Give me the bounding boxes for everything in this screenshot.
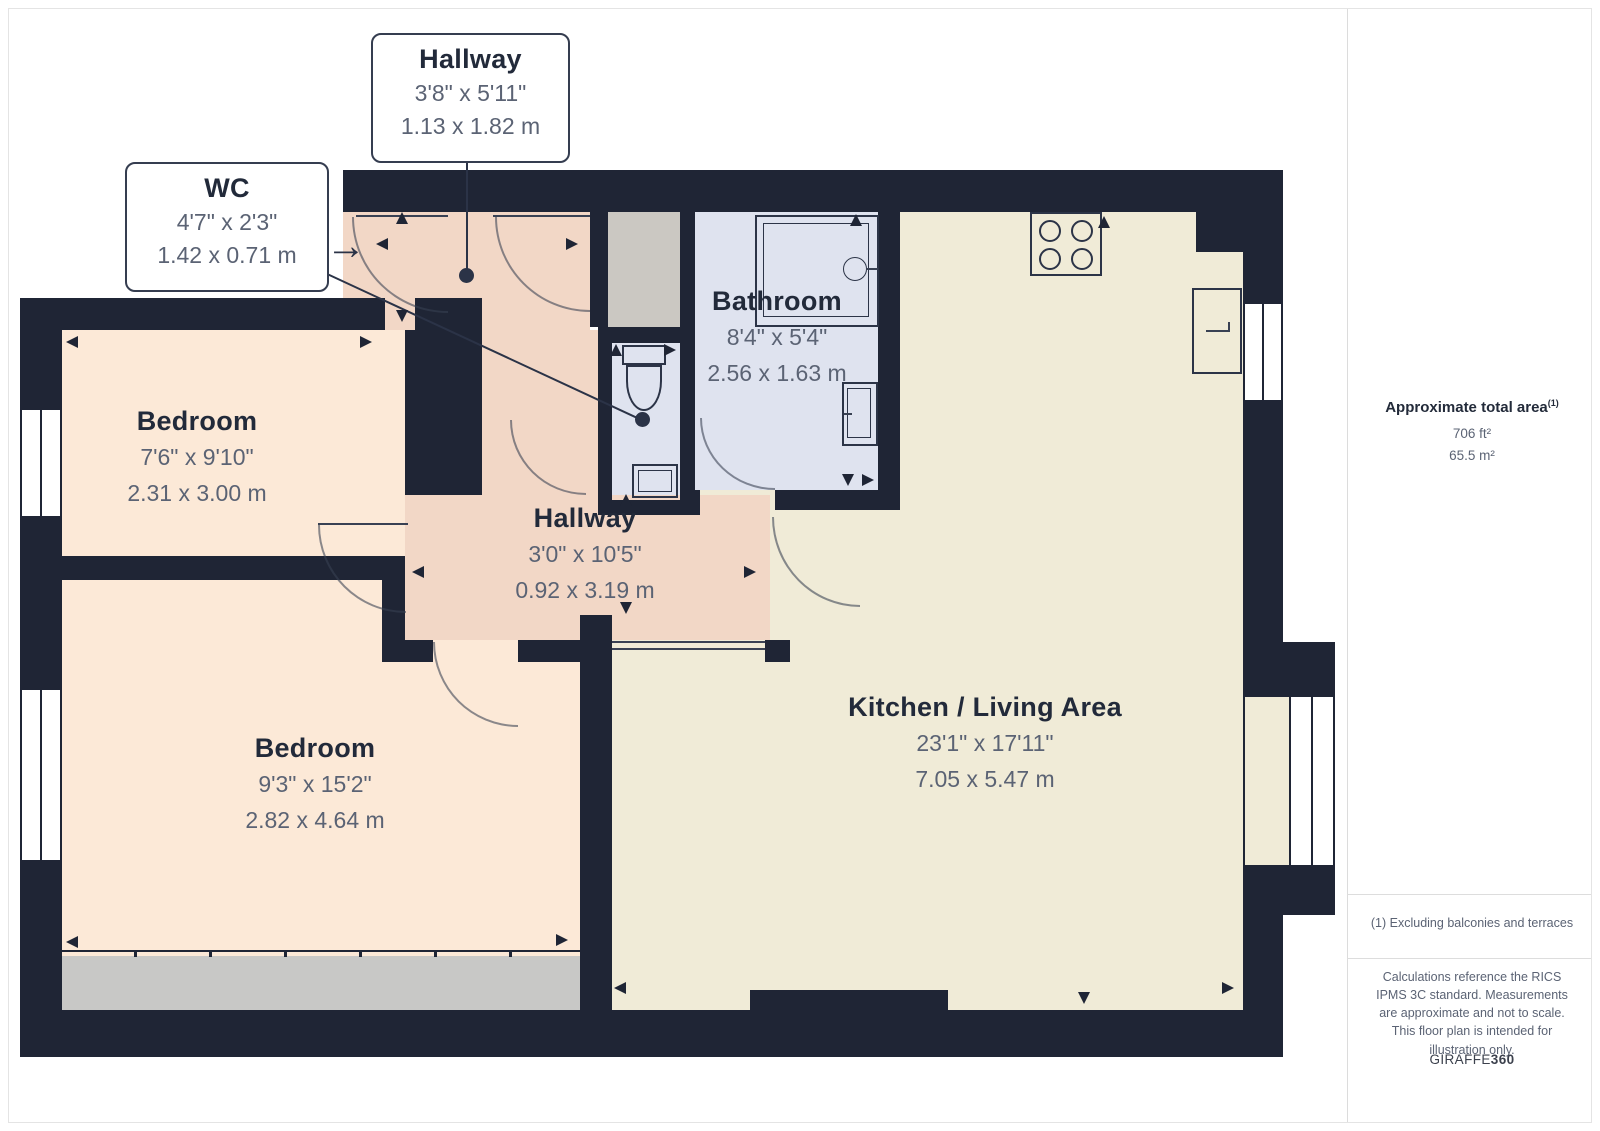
measure-arrow-icon	[614, 982, 626, 994]
disclaimer-text: Calculations reference the RICS IPMS 3C …	[1367, 968, 1577, 1059]
sink-basin-icon	[638, 470, 672, 492]
entrance-arrow-icon: →	[326, 226, 366, 266]
measure-arrow-icon	[412, 566, 424, 578]
room-title: Bedroom	[57, 406, 337, 437]
brand-name: GIRAFFE	[1429, 1052, 1490, 1067]
room-dimensions-imperial: 7'6" x 9'10"	[57, 443, 337, 473]
measure-arrow-icon	[1078, 992, 1090, 1004]
measure-arrow-icon	[566, 238, 578, 250]
measure-arrow-icon	[66, 936, 78, 948]
kitchen-sink-icon	[1192, 288, 1242, 374]
measure-arrow-icon	[360, 336, 372, 348]
room-dimensions-metric: 0.92 x 3.19 m	[445, 576, 725, 606]
threshold-line	[612, 641, 765, 643]
tap-icon	[1206, 330, 1230, 332]
wall-segment	[20, 518, 62, 690]
wall-segment	[405, 330, 482, 495]
wall-segment	[765, 640, 790, 662]
hob-icon	[1030, 212, 1102, 276]
window	[20, 408, 62, 518]
measure-arrow-icon	[862, 474, 874, 486]
window-mullion	[1311, 697, 1313, 865]
room-dimensions-metric: 2.56 x 1.63 m	[637, 359, 917, 389]
room-dimensions-metric: 2.82 x 4.64 m	[175, 806, 455, 836]
callout-leader-line	[466, 150, 468, 276]
room-dimensions-imperial: 4'7" x 2'3"	[127, 208, 327, 237]
wall-segment	[598, 343, 612, 500]
wall-segment	[1196, 212, 1243, 252]
burner-icon	[1039, 220, 1061, 242]
balcony-door-bay	[1243, 695, 1335, 867]
wall-segment	[20, 298, 385, 330]
wall-segment	[20, 860, 62, 1012]
window-mullion	[40, 690, 42, 860]
wall-segment	[405, 640, 433, 662]
sidebar-rule	[1347, 894, 1592, 895]
shower-drain-icon	[843, 257, 867, 281]
label-bedroom-2: Bedroom 9'3" x 15'2" 2.82 x 4.64 m	[175, 733, 455, 836]
room-dimensions-imperial: 3'8" x 5'11"	[373, 79, 568, 108]
wall-segment	[1243, 865, 1335, 915]
wall-segment	[1243, 642, 1335, 697]
door-leaf	[318, 523, 408, 525]
wall-segment	[580, 615, 612, 1010]
measure-arrow-icon	[610, 344, 622, 356]
callout-leader-dot	[635, 412, 650, 427]
tap-icon	[844, 413, 852, 415]
room-dimensions-metric: 1.13 x 1.82 m	[373, 112, 568, 141]
room-dimensions-metric: 7.05 x 5.47 m	[820, 765, 1150, 795]
floorplan-page: → Hallway 3'8" x 5'11" 1.13 x 1.82 m WC …	[0, 0, 1600, 1131]
window-mullion	[1262, 304, 1264, 400]
measure-arrow-icon	[850, 214, 862, 226]
measure-arrow-icon	[556, 934, 568, 946]
room-title: Kitchen / Living Area	[820, 692, 1150, 723]
room-dimensions-metric: 1.42 x 0.71 m	[127, 241, 327, 270]
window	[1243, 302, 1283, 402]
callout-wc: WC 4'7" x 2'3" 1.42 x 0.71 m	[125, 162, 329, 292]
wall-segment	[1243, 915, 1283, 1012]
burner-icon	[1039, 248, 1061, 270]
wall-segment	[343, 170, 1283, 212]
callout-hallway: Hallway 3'8" x 5'11" 1.13 x 1.82 m	[371, 33, 570, 163]
window-mullion	[40, 410, 42, 516]
wall-segment	[1243, 400, 1283, 642]
room-title: Hallway	[373, 44, 568, 75]
footnote-marker: (1)	[1548, 398, 1559, 408]
wc-sink-icon	[632, 464, 678, 498]
measure-arrow-icon	[66, 336, 78, 348]
label-bathroom: Bathroom 8'4" x 5'4" 2.56 x 1.63 m	[637, 286, 917, 389]
room-dimensions-imperial: 3'0" x 10'5"	[445, 540, 725, 570]
callout-leader-dot	[459, 268, 474, 283]
sidebar-divider	[1347, 8, 1348, 1123]
wall-segment	[1243, 212, 1283, 304]
sidebar-rule	[1347, 958, 1592, 959]
window	[20, 688, 62, 862]
measure-arrow-icon	[396, 212, 408, 224]
wardrobe-hatch-line	[62, 950, 580, 957]
label-hallway-mid: Hallway 3'0" x 10'5" 0.92 x 3.19 m	[445, 503, 725, 606]
label-bedroom-1: Bedroom 7'6" x 9'10" 2.31 x 3.00 m	[57, 406, 337, 509]
bathroom-sink-icon	[842, 382, 878, 446]
shower-arm-icon	[866, 268, 878, 270]
measure-arrow-icon	[396, 310, 408, 322]
room-dimensions-metric: 2.31 x 3.00 m	[57, 479, 337, 509]
burner-icon	[1071, 220, 1093, 242]
burner-icon	[1071, 248, 1093, 270]
threshold-line	[612, 648, 765, 650]
measure-arrow-icon	[1098, 216, 1110, 228]
brand-number: 360	[1491, 1052, 1515, 1067]
total-area-ft: 706 ft²	[1352, 426, 1592, 441]
total-area-heading-text: Approximate total area	[1385, 399, 1548, 416]
room-dimensions-imperial: 8'4" x 5'4"	[637, 323, 917, 353]
room-title: Bedroom	[175, 733, 455, 764]
wall-column	[750, 990, 948, 1012]
wardrobe-strip	[62, 956, 580, 1010]
room-title: Hallway	[445, 503, 725, 534]
giraffe360-logo: GIRAFFE360	[1352, 1052, 1592, 1067]
room-title: WC	[127, 173, 327, 204]
room-dimensions-imperial: 9'3" x 15'2"	[175, 770, 455, 800]
door-leaf	[493, 215, 590, 217]
wall-segment	[590, 212, 608, 327]
label-kitchen-living: Kitchen / Living Area 23'1" x 17'11" 7.0…	[820, 692, 1150, 795]
measure-arrow-icon	[1222, 982, 1234, 994]
total-area-m: 65.5 m²	[1352, 448, 1592, 463]
wall-segment	[775, 490, 900, 510]
room-title: Bathroom	[637, 286, 917, 317]
measure-arrow-icon	[744, 566, 756, 578]
measure-arrow-icon	[376, 238, 388, 250]
footnote-text: (1) Excluding balconies and terraces	[1352, 916, 1592, 930]
total-area-heading: Approximate total area(1)	[1352, 398, 1592, 416]
tap-icon	[1228, 322, 1230, 332]
balcony-door-panel	[1245, 697, 1291, 865]
wall-segment	[20, 1010, 1283, 1057]
measure-arrow-icon	[842, 474, 854, 486]
room-dimensions-imperial: 23'1" x 17'11"	[820, 729, 1150, 759]
